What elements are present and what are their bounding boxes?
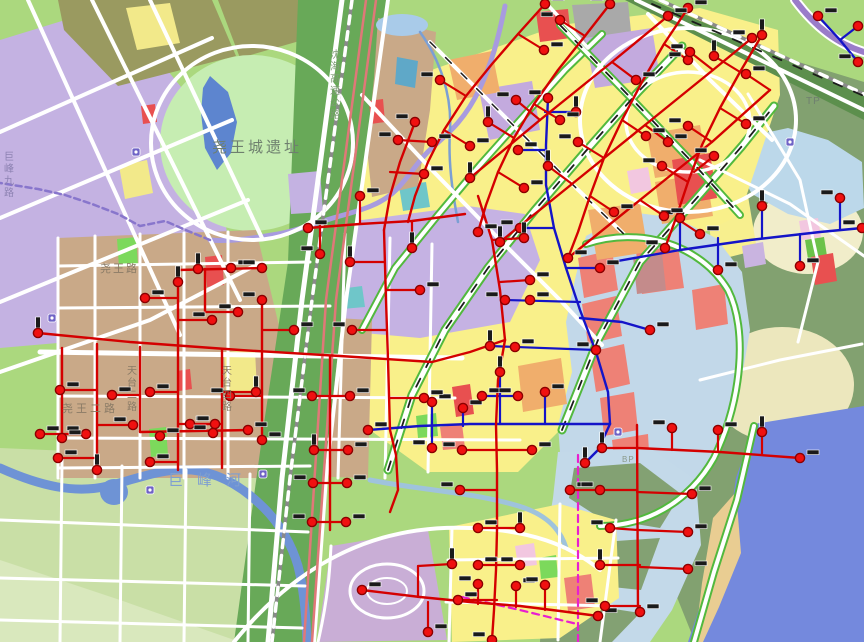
node-label-tag [669,52,681,57]
node-label-tag [760,19,765,30]
node-label-tag [486,106,491,117]
network-node[interactable] [500,295,509,304]
network-node[interactable] [347,325,356,334]
network-node[interactable] [419,169,428,178]
road-or-water-line [58,438,520,440]
network-node[interactable] [465,173,474,182]
network-node[interactable] [155,431,164,440]
road-or-water-line [448,558,618,560]
node-label-tag [586,598,598,603]
node-label-tag [643,158,655,163]
network-node[interactable] [308,478,317,487]
poi-marker-dot-icon [50,316,53,319]
network-node[interactable] [145,387,154,396]
network-node[interactable] [92,465,101,474]
network-node[interactable] [747,33,756,42]
network-node[interactable] [591,345,600,354]
node-label-tag [653,128,665,133]
network-node[interactable] [341,517,350,526]
network-node[interactable] [539,45,548,54]
node-label-tag [450,548,455,559]
node-label-tag [607,260,619,265]
road-or-water-line [120,466,122,642]
node-label-tag [157,384,169,389]
network-node[interactable] [427,443,436,452]
node-label-tag [95,454,100,465]
node-label-tag [825,8,837,13]
network-node[interactable] [57,433,66,442]
network-node[interactable] [605,523,614,532]
node-label-tag [621,204,633,209]
node-label-tag [753,66,765,71]
network-node[interactable] [309,445,318,454]
node-label-tag [647,604,659,609]
node-label-tag [522,222,527,233]
network-node[interactable] [355,191,364,200]
node-label-tag [243,292,255,297]
node-label-tag [421,72,433,77]
node-label-tag [821,190,833,195]
node-label-tag [559,134,571,139]
network-node[interactable] [473,523,482,532]
network-node[interactable] [741,119,750,128]
network-node[interactable] [513,391,522,400]
network-node[interactable] [540,387,549,396]
network-node[interactable] [555,115,564,124]
node-label-tag [435,624,447,629]
network-node[interactable] [465,141,474,150]
node-label-tag [47,426,59,431]
network-node[interactable] [525,275,534,284]
node-label-tag [196,253,201,264]
node-label-tag [367,188,379,193]
node-label-tag [355,442,367,447]
network-node[interactable] [511,581,520,590]
network-node[interactable] [495,367,504,376]
network-node[interactable] [455,485,464,494]
network-node[interactable] [540,0,549,9]
network-node[interactable] [515,560,524,569]
network-node[interactable] [663,11,672,20]
node-label-tag [760,190,765,201]
node-label-tag [301,246,313,251]
node-label-tag [459,576,471,581]
network-node[interactable] [563,253,572,262]
network-node[interactable] [357,585,366,594]
network-node[interactable] [683,527,692,536]
network-node[interactable] [667,423,676,432]
node-label-tag [36,317,41,328]
node-label-tag [473,632,485,637]
network-node[interactable] [210,419,219,428]
network-node[interactable] [600,601,609,610]
network-node[interactable] [145,457,154,466]
network-node[interactable] [35,429,44,438]
red-pipe-main [637,425,638,612]
node-label-tag [315,220,327,225]
node-label-tag [431,166,443,171]
network-node[interactable] [857,223,864,232]
node-label-tag [312,434,317,445]
node-label-tag [657,322,669,327]
network-node[interactable] [251,387,260,396]
network-node[interactable] [419,393,428,402]
node-label-tag [581,482,593,487]
node-label-tag [498,356,503,367]
network-node[interactable] [595,560,604,569]
road-or-water-line [184,470,186,642]
node-label-tag [526,577,538,582]
node-label-tag [485,557,497,562]
node-label-tag [675,8,687,13]
node-label-tag [157,454,169,459]
network-node[interactable] [363,425,372,434]
network-node[interactable] [853,21,862,30]
node-label-tag [529,90,541,95]
node-label-tag [488,330,493,341]
map-label: 天台二路 [127,366,137,413]
zone-shape [627,167,652,194]
node-label-tag [669,118,681,123]
network-node[interactable] [289,325,298,334]
node-label-tag [197,416,209,421]
network-node[interactable] [173,277,182,286]
network-node[interactable] [709,51,718,60]
node-label-tag [269,432,281,437]
node-label-tag [413,440,425,445]
poi-marker-dot-icon [134,150,137,153]
network-node[interactable] [683,564,692,573]
node-label-tag [583,447,588,458]
node-label-tag [219,304,231,309]
map-label: 尧王二路 [62,402,118,415]
network-node[interactable] [605,0,614,9]
node-label-tag [497,92,509,97]
node-label-tag [485,520,497,525]
network-node[interactable] [495,237,504,246]
planning-map[interactable]: 尧王城遗址沈海高速公路尧王路尧王二路天台二路天台四路巨峰河巨峰九路TPBP [0,0,864,642]
network-node[interactable] [185,419,194,428]
network-node[interactable] [193,264,202,273]
network-node[interactable] [257,263,266,272]
map-label: 尧王路 [100,262,139,275]
road-or-water-line [60,460,62,642]
node-label-tag [396,114,408,119]
network-node[interactable] [555,15,564,24]
network-node[interactable] [233,307,242,316]
node-label-tag [501,220,513,225]
node-label-tag [301,322,313,327]
network-node[interactable] [435,75,444,84]
network-node[interactable] [458,403,467,412]
network-node[interactable] [515,523,524,532]
node-label-tag [577,342,589,347]
network-node[interactable] [243,425,252,434]
node-label-tag [441,482,453,487]
network-node[interactable] [657,161,666,170]
node-label-tag [468,162,473,173]
network-node[interactable] [415,285,424,294]
network-node[interactable] [595,263,604,272]
network-node[interactable] [685,47,694,56]
node-label-tag [575,250,587,255]
node-label-tag [167,428,179,433]
network-node[interactable] [695,229,704,238]
network-node[interactable] [447,559,456,568]
road-or-water-line [248,474,250,642]
node-label-tag [725,422,737,427]
poi-marker-dot-icon [261,472,264,475]
network-node[interactable] [257,295,266,304]
network-node[interactable] [660,243,669,252]
network-node[interactable] [407,243,416,252]
map-label: 巨峰河 [168,472,255,489]
node-label-tag [531,180,543,185]
network-node[interactable] [128,420,137,429]
network-node[interactable] [427,137,436,146]
node-label-tag [598,549,603,560]
network-node[interactable] [345,391,354,400]
poi-marker-dot-icon [148,488,151,491]
node-label-tag [675,134,687,139]
map-label: BP [622,455,635,464]
node-label-tag [193,312,205,317]
node-label-tag [465,592,477,597]
network-node[interactable] [303,223,312,232]
node-label-tag [567,112,579,117]
network-node[interactable] [510,342,519,351]
node-label-tag [537,272,549,277]
node-label-tag [176,266,181,277]
node-label-tag [379,132,391,137]
node-label-tag [255,422,267,427]
network-node[interactable] [519,233,528,242]
node-label-tag [733,30,745,35]
network-node[interactable] [709,151,718,160]
node-label-tag [753,116,765,121]
network-node[interactable] [565,485,574,494]
network-node[interactable] [795,261,804,270]
zone-shape [100,479,128,505]
network-node[interactable] [631,75,640,84]
network-node[interactable] [609,207,618,216]
map-label: TP [806,96,821,107]
network-node[interactable] [226,263,235,272]
node-label-tag [443,442,455,447]
node-label-tag [725,262,737,267]
node-label-tag [699,486,711,491]
node-label-tag [539,442,551,447]
network-node[interactable] [453,595,462,604]
node-label-tag [525,142,537,147]
node-label-tag [369,582,381,587]
network-node[interactable] [713,265,722,274]
node-label-tag [522,339,534,344]
node-label-tag [551,42,563,47]
node-label-tag [439,134,451,139]
node-label-tag [485,224,497,229]
node-label-tag [807,258,819,263]
network-node[interactable] [477,391,486,400]
node-label-tag [646,240,658,245]
node-label-tag [152,290,164,295]
node-label-tag [114,417,126,422]
network-node[interactable] [580,458,589,467]
network-node[interactable] [457,445,466,454]
node-label-tag [760,416,765,427]
node-label-tag [552,0,564,1]
network-node[interactable] [675,213,684,222]
network-node[interactable] [663,137,672,146]
network-node[interactable] [543,93,552,102]
node-label-tag [537,292,549,297]
node-label-tag [498,226,503,237]
network-node[interactable] [659,211,668,220]
network-node[interactable] [853,57,862,66]
network-node[interactable] [593,611,602,620]
network-node[interactable] [423,627,432,636]
node-label-tag [294,475,306,480]
network-node[interactable] [257,435,266,444]
network-node[interactable] [345,257,354,266]
network-node[interactable] [81,429,90,438]
network-node[interactable] [513,145,522,154]
network-node[interactable] [107,390,116,399]
network-node[interactable] [410,117,419,126]
node-label-tag [591,520,603,525]
planning-map-canvas[interactable]: 尧王城遗址沈海高速公路尧王路尧王二路天台二路天台四路巨峰河巨峰九路TPBP [0,0,864,642]
network-node[interactable] [543,161,552,170]
network-node[interactable] [683,121,692,130]
network-node[interactable] [757,201,766,210]
network-node[interactable] [473,560,482,569]
network-node[interactable] [573,137,582,146]
network-node[interactable] [315,249,324,258]
road-or-water-line [58,306,330,308]
node-label-tag [712,40,717,51]
node-label-tag [427,282,439,287]
network-node[interactable] [343,445,352,454]
network-node[interactable] [55,385,64,394]
node-label-tag [410,232,415,243]
network-node[interactable] [307,391,316,400]
network-node[interactable] [835,193,844,202]
network-node[interactable] [741,69,750,78]
map-label: 沈海高速公路 [330,48,340,121]
network-node[interactable] [595,485,604,494]
node-label-tag [671,208,683,213]
network-node[interactable] [687,489,696,498]
node-label-tag [254,376,259,387]
node-label-tag [243,260,255,265]
network-node[interactable] [485,341,494,350]
node-label-tag [65,450,77,455]
network-node[interactable] [33,328,42,337]
network-node[interactable] [713,425,722,434]
node-label-tag [591,0,603,1]
node-label-tag [194,425,206,430]
network-node[interactable] [519,183,528,192]
node-label-tag [293,388,305,393]
zone-shape [692,284,728,330]
node-label-tag [541,12,553,17]
network-node[interactable] [757,427,766,436]
node-label-tag [357,388,369,393]
node-label-tag [353,514,365,519]
node-label-tag [518,512,523,523]
network-node[interactable] [813,11,822,20]
node-label-tag [707,226,719,231]
network-node[interactable] [393,135,402,144]
node-label-tag [477,138,489,143]
network-node[interactable] [635,607,644,616]
network-node[interactable] [795,453,804,462]
network-node[interactable] [483,117,492,126]
node-label-tag [499,388,511,393]
zones-and-roads-layer [0,0,864,642]
zone-shape [395,57,418,88]
node-label-tag [643,72,655,77]
network-node[interactable] [645,325,654,334]
node-label-tag [695,561,707,566]
node-label-tag [354,475,366,480]
node-label-tag [501,557,513,562]
poi-marker-dot-icon [616,430,619,433]
node-label-tag [695,524,707,529]
node-label-tag [695,0,707,5]
node-label-tag [695,148,707,153]
zone-shape [742,242,766,268]
network-node[interactable] [597,443,606,452]
network-node[interactable] [473,227,482,236]
network-node[interactable] [208,428,217,437]
network-node[interactable] [757,30,766,39]
node-label-tag [807,450,819,455]
node-label-tag [67,382,79,387]
network-node[interactable] [540,580,549,589]
poi-marker-dot-icon [788,140,791,143]
node-label-tag [839,54,851,59]
node-label-tag [69,430,81,435]
network-node[interactable] [487,635,496,642]
node-label-tag [653,420,665,425]
node-label-tag [333,322,345,327]
node-label-tag [574,96,579,107]
network-node[interactable] [527,445,536,454]
network-node[interactable] [511,95,520,104]
network-node[interactable] [307,517,316,526]
network-node[interactable] [342,478,351,487]
network-node[interactable] [140,293,149,302]
node-label-tag [486,292,498,297]
node-label-tag [375,422,387,427]
node-label-tag [431,390,443,395]
network-node[interactable] [641,131,650,140]
node-label-tag [552,384,564,389]
map-label: 尧王城遗址 [212,139,302,156]
network-node[interactable] [525,295,534,304]
network-node[interactable] [207,315,216,324]
node-label-tag [600,432,605,443]
network-node[interactable] [53,453,62,462]
node-label-tag [546,150,551,161]
node-label-tag [293,514,305,519]
map-label: 天台四路 [222,366,232,413]
node-label-tag [843,220,855,225]
node-label-tag [671,44,683,49]
node-label-tag [348,246,353,257]
network-node[interactable] [473,579,482,588]
